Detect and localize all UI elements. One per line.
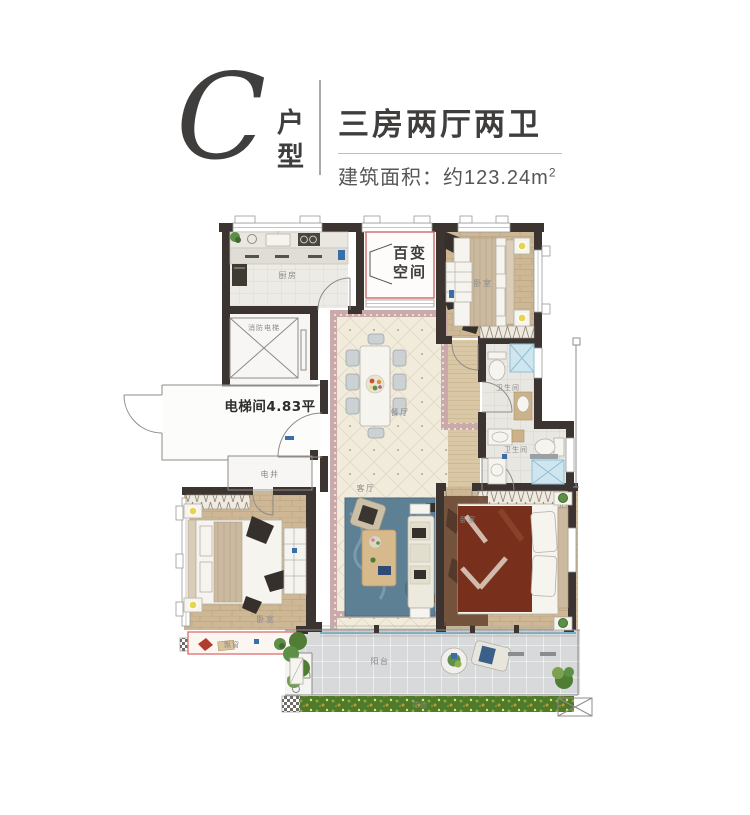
label-bedroom2: 卧室: [474, 278, 493, 288]
label-shaft: 电井: [261, 469, 280, 479]
label-flower-bed: 花池: [412, 700, 428, 709]
bay-window: [188, 632, 296, 654]
floor-plan-svg: 厨房 百变 空间 卧室 消防电梯 卫生间 电梯间4.83平 餐厅 电井 卫生间 …: [115, 198, 610, 758]
label-bedroom3: 卧室: [257, 614, 276, 624]
balcony-floor: [285, 630, 580, 695]
header-divider: [319, 80, 321, 175]
header-rule: [338, 153, 562, 154]
layout-title: 三房两厅两卫: [338, 99, 562, 144]
label-kitchen: 厨房: [279, 270, 298, 280]
label-fire-elevator: 消防电梯: [248, 323, 280, 332]
area-value: 建筑面积：约123.24m: [338, 167, 549, 189]
label-master: 卧室: [460, 515, 476, 524]
label-flex-1: 百变: [393, 244, 427, 262]
label-bathroom2: 卫生间: [504, 445, 528, 454]
label-bay-window: 飘窗: [224, 640, 240, 649]
area-superscript: 2: [549, 165, 557, 179]
master-bedroom: [444, 492, 572, 630]
toilet: [554, 438, 564, 456]
unit-type-letter: C: [176, 58, 266, 176]
area-text: 建筑面积：约123.24m2: [338, 161, 562, 190]
unit-type-suffix: 户型: [274, 108, 301, 176]
corridor-floor: [448, 340, 480, 487]
elevator-hall: [285, 436, 294, 440]
living-room: [345, 497, 435, 618]
header-right: 三房两厅两卫 建筑面积：约123.24m2: [338, 99, 562, 190]
washer: [488, 458, 506, 484]
sink: [488, 429, 512, 445]
elevator-hall-floor: [162, 385, 320, 460]
fire-elevator-floor: [226, 312, 312, 384]
floor-plan: 厨房 百变 空间 卧室 消防电梯 卫生间 电梯间4.83平 餐厅 电井 卫生间 …: [115, 198, 610, 758]
label-living: 客厅: [357, 483, 376, 493]
label-flex-2: 空间: [393, 263, 427, 281]
bed3-desk: [284, 528, 306, 594]
toilet: [488, 352, 506, 359]
label-elevator-hall: 电梯间4.83平: [224, 398, 315, 415]
laptop: [378, 566, 391, 575]
label-balcony: 阳台: [371, 656, 390, 666]
label-bathroom1: 卫生间: [496, 383, 520, 392]
floorplan-page: C 户型 三房两厅两卫 建筑面积：约123.24m2: [0, 0, 750, 815]
label-dining: 餐厅: [391, 408, 410, 417]
flower-bed: [292, 696, 574, 712]
